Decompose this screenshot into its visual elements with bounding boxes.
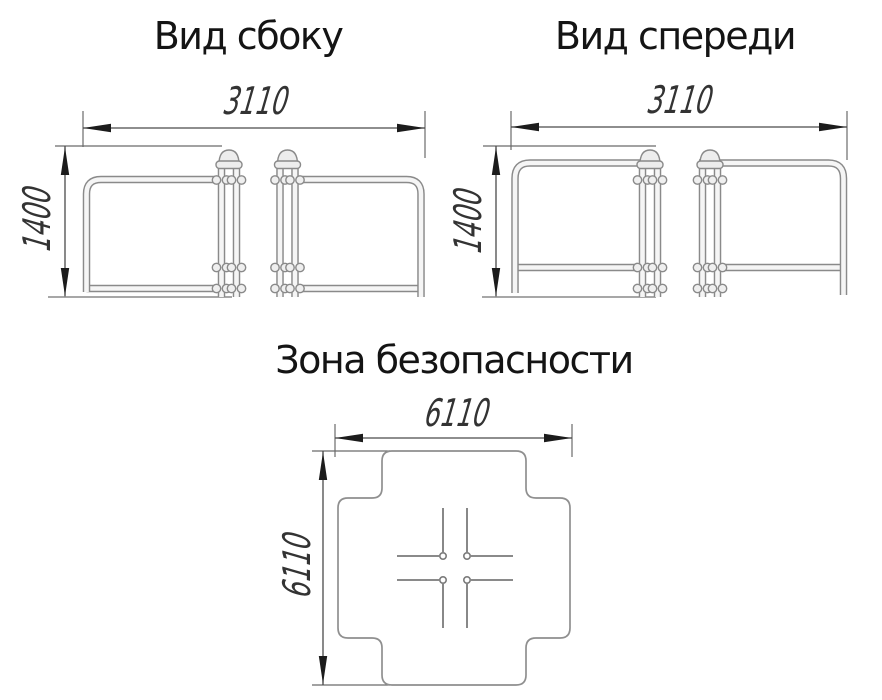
safety-zone-boundary [338,451,570,685]
side-view: Вид сбоку 3110 1400 [14,14,425,297]
post-marker [464,577,470,583]
arrow-down-icon [61,268,69,296]
technical-drawing-canvas: Вид сбоку 3110 1400 [0,0,882,700]
post-marker [440,577,446,583]
swing-post [212,150,245,297]
post-marker [464,553,470,559]
front-view-title: Вид спереди [555,14,795,58]
front-view: Вид спереди 3110 1400 [445,14,847,297]
side-view-title: Вид сбоку [154,14,344,58]
arrow-right-icon [544,434,572,442]
equipment-footprint [397,508,513,628]
safety-zone-depth-label: 6110 [274,526,319,603]
side-view-left-frame [87,180,241,293]
front-view-height-dimension: 1400 [445,146,656,297]
swing-post [693,150,726,297]
front-view-width-dimension: 3110 [511,77,847,160]
swing-post [633,150,666,297]
side-view-width-label: 3110 [218,78,295,123]
arrow-down-icon [319,656,327,684]
front-view-height-label: 1400 [445,182,490,259]
side-view-height-dimension: 1400 [14,146,222,297]
side-view-height-label: 1400 [14,180,59,257]
arrow-up-icon [61,147,69,175]
arrow-left-icon [83,124,111,132]
post-marker [440,553,446,559]
safety-zone-depth-dimension: 6110 [274,451,390,685]
arrow-left-icon [511,123,539,131]
safety-zone-title: Зона безопасности [275,338,632,382]
drawing-svg: Вид сбоку 3110 1400 [0,0,882,700]
safety-zone-width-label: 6110 [419,390,496,435]
arrow-left-icon [335,434,363,442]
arrow-right-icon [397,124,425,132]
safety-zone: Зона безопасности 6110 6110 [274,338,632,685]
arrow-up-icon [492,147,500,175]
arrow-up-icon [319,452,327,480]
arrow-down-icon [492,268,500,296]
front-view-width-label: 3110 [642,77,719,122]
swing-post [271,150,304,297]
safety-zone-width-dimension: 6110 [335,390,572,457]
arrow-right-icon [819,123,847,131]
